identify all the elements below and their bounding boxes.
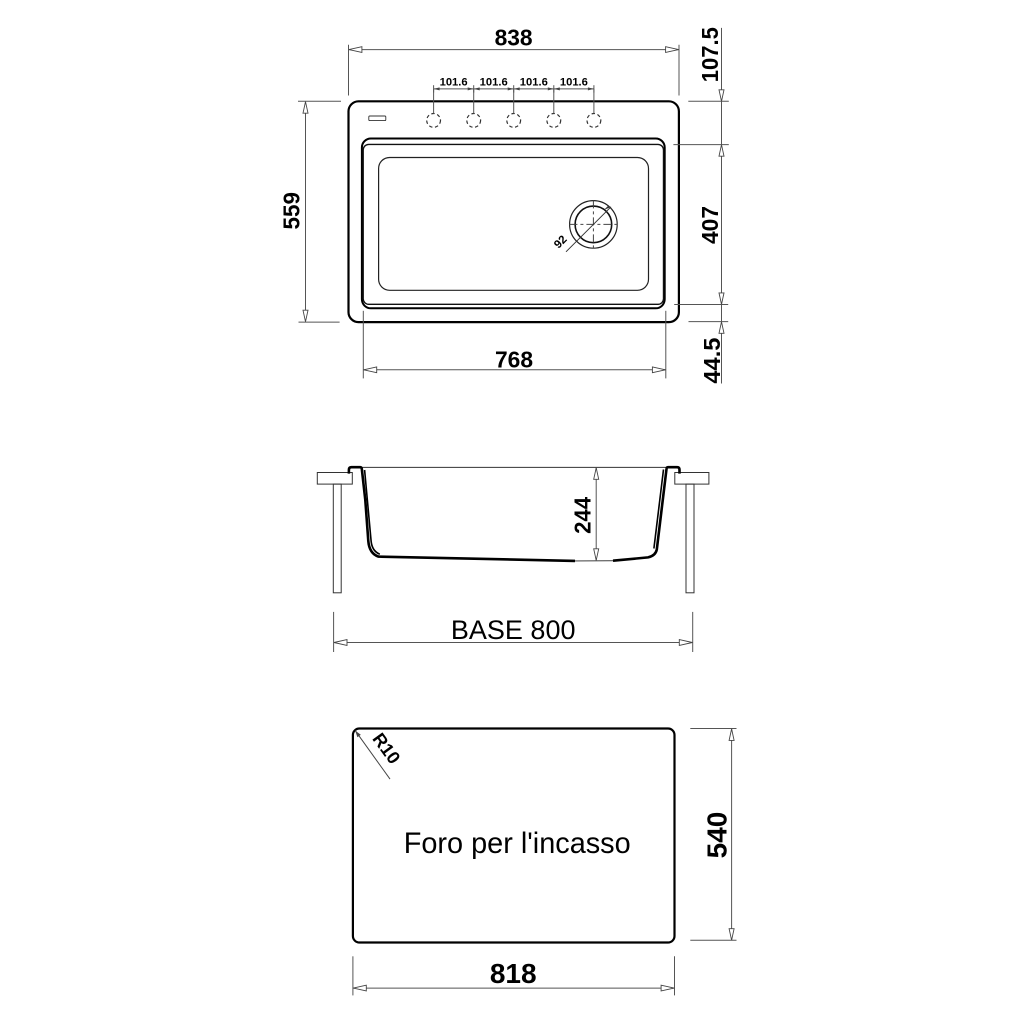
svg-text:101.6: 101.6 <box>520 77 548 89</box>
svg-text:540: 540 <box>701 812 732 859</box>
svg-text:407: 407 <box>697 206 723 244</box>
svg-text:101.6: 101.6 <box>440 77 468 89</box>
svg-text:44.5: 44.5 <box>699 337 725 383</box>
svg-text:107.5: 107.5 <box>697 27 723 82</box>
svg-text:BASE 800: BASE 800 <box>451 615 576 645</box>
svg-text:101.6: 101.6 <box>560 77 588 89</box>
svg-text:818: 818 <box>490 958 537 989</box>
svg-text:559: 559 <box>279 192 305 230</box>
svg-text:Foro per l'incasso: Foro per l'incasso <box>404 827 631 860</box>
svg-text:244: 244 <box>569 497 595 534</box>
svg-text:101.6: 101.6 <box>480 77 508 89</box>
svg-text:768: 768 <box>495 346 533 372</box>
svg-text:838: 838 <box>495 25 533 51</box>
